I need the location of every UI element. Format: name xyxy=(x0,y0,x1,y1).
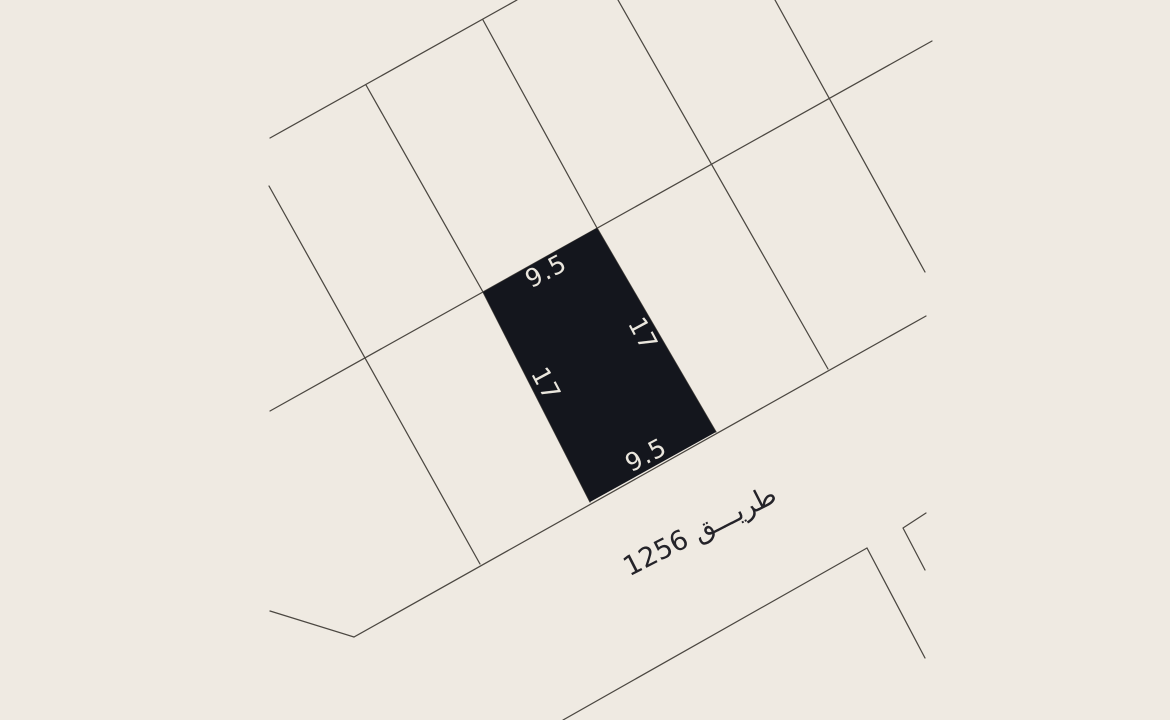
cadastral-map-viewport: 9.5 17 17 9.5 طريـــق 1256 xyxy=(0,0,1170,720)
cadastral-map: 9.5 17 17 9.5 طريـــق 1256 xyxy=(0,0,1170,720)
